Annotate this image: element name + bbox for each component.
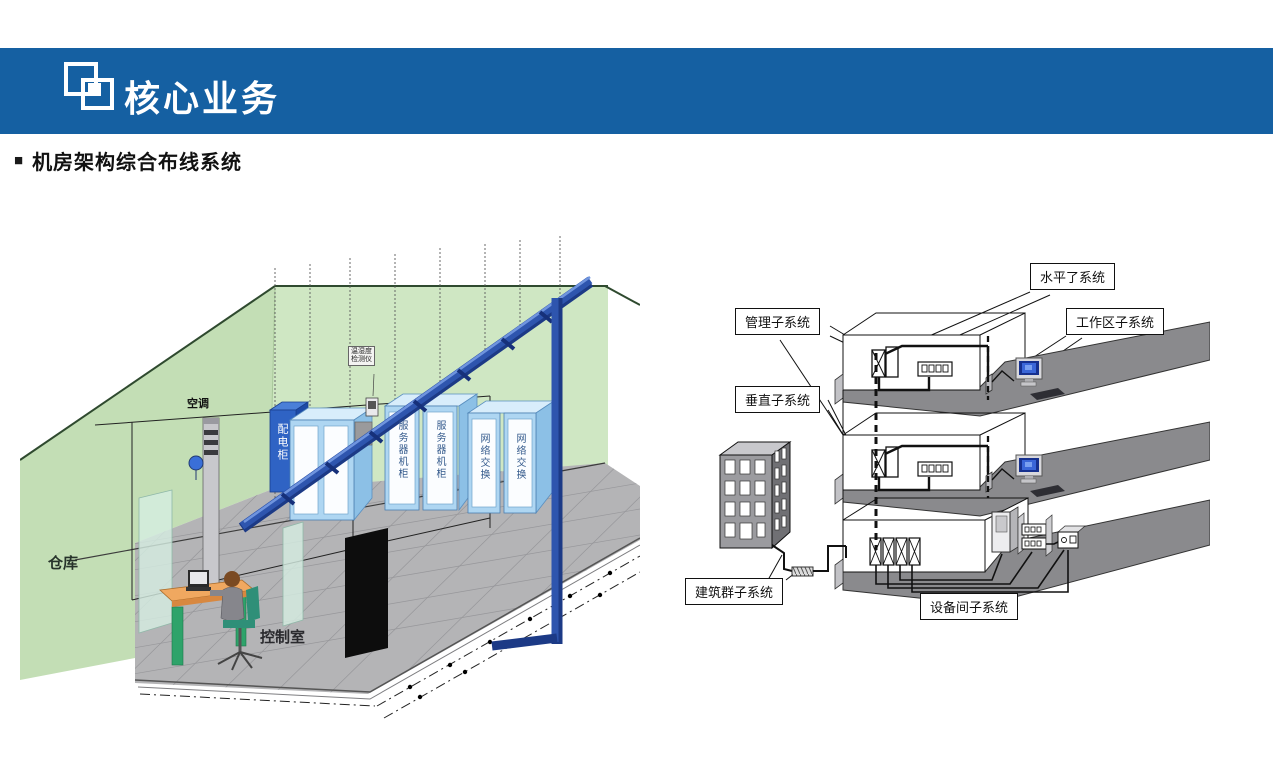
callout-campus-subsystem: 建筑群子系统 — [685, 578, 783, 605]
server-room-svg — [20, 228, 640, 723]
chair-back — [246, 586, 260, 622]
page-title: 核心业务 — [124, 70, 280, 122]
section-title: 机房架构综合布线系统 — [32, 146, 242, 175]
slide: { "header": { "title": "核心业务" }, "sectio… — [0, 0, 1273, 764]
label-power-cabinet: 配电柜 — [276, 423, 287, 462]
floor-2-room — [843, 435, 980, 490]
section-heading: ■ 机房架构综合布线系统 — [14, 146, 242, 175]
callout-vertical-subsystem: 垂直子系统 — [735, 386, 820, 413]
label-sensor-line1: 温湿度 — [351, 348, 372, 356]
callout-equipment-room-subsystem: 设备间子系统 — [920, 593, 1018, 620]
floor-3 — [835, 498, 1210, 605]
label-sensor-line2: 检测仪 — [351, 356, 372, 364]
label-control-room: 控制室 — [260, 626, 305, 647]
campus-building — [720, 442, 790, 548]
overlapping-squares-logo-icon — [62, 56, 120, 114]
header-band: 核心业务 — [0, 48, 1273, 134]
label-sensor: 温湿度 检测仪 — [348, 346, 375, 366]
person-arm — [210, 590, 226, 596]
square-bullet-icon: ■ — [14, 153, 23, 168]
label-server-rack-2: 服务器机柜 — [434, 420, 444, 480]
cabling-subsystems-svg — [680, 250, 1210, 630]
person-head — [224, 571, 240, 587]
callout-horizontal-subsystem: 水平了系统 — [1030, 263, 1115, 290]
callout-management-subsystem: 管理子系统 — [735, 308, 820, 335]
chair-seat — [223, 620, 255, 628]
label-air-conditioner: 空调 — [187, 395, 209, 411]
callout-work-area-subsystem: 工作区子系统 — [1066, 308, 1164, 335]
label-network-switch-2: 网络交换 — [514, 433, 524, 481]
floor-1-room — [843, 335, 980, 390]
tray-foot — [492, 638, 557, 646]
server-room-illustration: 空调 仓库 控制室 配电柜 服务器机柜 服务器机柜 网络交换 网络交换 温湿度 … — [20, 228, 640, 723]
label-warehouse: 仓库 — [48, 552, 78, 573]
door — [345, 528, 388, 658]
equipment-cabinet — [992, 507, 1018, 552]
logo-filled-square — [88, 83, 101, 96]
label-network-switch-1: 网络交换 — [478, 433, 488, 481]
wall-fan-icon — [189, 456, 203, 470]
cabling-subsystems-diagram: 管理子系统 水平了系统 工作区子系统 垂直子系统 建筑群子系统 设备间子系统 — [680, 250, 1210, 630]
label-server-rack-1: 服务器机柜 — [396, 420, 406, 480]
cable-coil — [792, 567, 813, 576]
desk-leg — [172, 607, 183, 665]
